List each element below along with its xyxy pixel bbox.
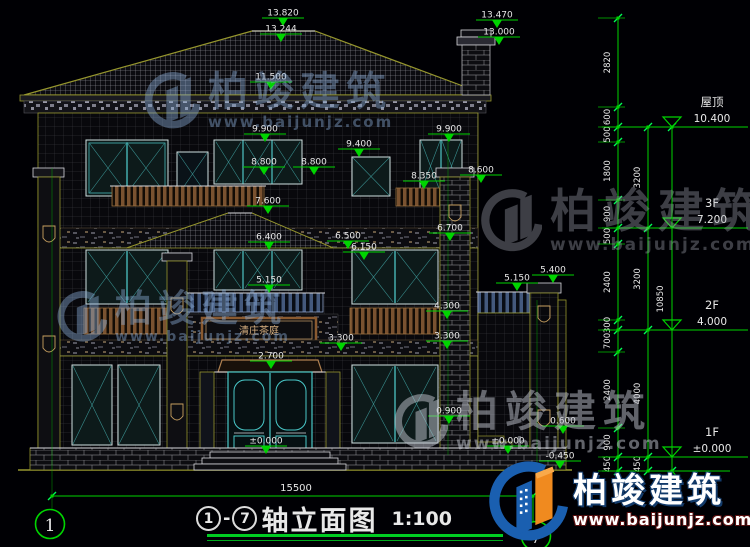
dim-tick-dot	[617, 351, 620, 354]
dim-chain-value: 3200	[633, 167, 643, 189]
elevation-mark-value: 13.000	[483, 28, 515, 38]
elevation-mark-value: 3.300	[328, 334, 354, 344]
elevation-mark-triangle	[336, 343, 346, 351]
elevation-mark-triangle	[354, 149, 364, 157]
floor-level-label: 3F	[705, 196, 719, 210]
dim-chain-value: 600	[603, 109, 613, 125]
dim-tick-dot	[617, 427, 620, 430]
drawing-title: 1 - 7 轴立面图 1:100	[196, 499, 452, 538]
elevation-mark-value: 9.400	[346, 140, 372, 150]
dim-chain-value: 2400	[603, 379, 613, 401]
elevation-mark-triangle	[512, 283, 522, 291]
dim-chain-value: 500	[603, 228, 613, 244]
elevation-mark-triangle	[309, 167, 319, 175]
floor-level-label: 屋顶	[701, 95, 724, 109]
dim-chain-value: 300	[603, 317, 613, 333]
elevation-mark-value: 0.900	[436, 407, 462, 417]
elevation-mark-value: 11.500	[255, 73, 287, 83]
elevation-mark-triangle	[264, 242, 274, 250]
title-axis-start: 1	[196, 506, 221, 531]
floor-level-value: 10.400	[694, 113, 731, 125]
dim-tick-dot	[617, 243, 620, 246]
elevation-mark-value: 5.150	[504, 274, 530, 284]
floor-level-label: 1F	[705, 425, 719, 439]
elevation-mark-triangle	[266, 361, 276, 369]
cad-canvas: 清庄茶庭	[0, 0, 750, 547]
elevation-mark-triangle	[359, 252, 369, 260]
title-scale: 1:100	[391, 508, 451, 530]
floor-level-label: 2F	[705, 298, 719, 312]
elevation-mark-triangle	[419, 181, 429, 189]
floor-level-value: 4.000	[697, 316, 727, 328]
elevation-mark-triangle	[444, 416, 454, 424]
floor-level-value: 7.200	[697, 214, 727, 226]
elevation-mark-value: ±0.000	[491, 437, 525, 447]
elevation-mark-value: 6.500	[335, 232, 361, 242]
elevation-mark-value: 8.600	[468, 166, 494, 176]
elevation-mark-triangle	[259, 167, 269, 175]
elevation-mark-triangle	[261, 446, 271, 454]
bottom-dim-value: 15500	[280, 483, 312, 494]
elevation-mark-value: 13.244	[265, 25, 297, 35]
dim-tick-dot	[51, 495, 54, 498]
title-underline	[207, 534, 503, 537]
elevation-mark-triangle	[503, 446, 513, 454]
elevation-mark-value: ±0.000	[249, 437, 283, 447]
dim-tick-dot	[617, 319, 620, 322]
elevation-mark-triangle	[548, 275, 558, 283]
elevation-mark-triangle	[558, 426, 568, 434]
elevation-mark-triangle	[444, 134, 454, 142]
dim-chain-value: 2820	[603, 52, 613, 74]
elevation-mark-value: 3.300	[434, 332, 460, 342]
dim-tick-dot	[617, 17, 620, 20]
elevation-mark-value: 0.600	[550, 417, 576, 427]
elevation-mark-value: 13.470	[481, 11, 513, 21]
elevation-mark-triangle	[260, 134, 270, 142]
elevation-mark-triangle	[266, 82, 276, 90]
dim-tick-dot	[617, 141, 620, 144]
dim-chain-value: 500	[603, 126, 613, 142]
elevation-mark-value: 6.700	[437, 224, 463, 234]
brand-logo-icon	[479, 458, 571, 544]
elevation-mark-triangle	[276, 34, 286, 42]
dim-chain-value: 900	[603, 206, 613, 222]
dim-tick-dot	[617, 199, 620, 202]
title-name: 轴立面图	[261, 499, 377, 538]
elevation-mark-triangle	[445, 233, 455, 241]
dim-chain-value: 900	[603, 434, 613, 450]
elevation-mark-value: 6.400	[256, 233, 282, 243]
brand-logo-text: 柏竣建筑	[573, 474, 750, 508]
elevation-mark-triangle	[263, 206, 273, 214]
dim-chain-value: 700	[603, 333, 613, 349]
dim-chain-value: 1800	[603, 160, 613, 182]
title-dash: -	[223, 508, 230, 529]
elevation-mark-triangle	[442, 311, 452, 319]
dim-tick-dot	[617, 106, 620, 109]
elevation-mark-value: 9.900	[436, 125, 462, 135]
axis-bubble-left-number: 1	[45, 516, 56, 536]
dim-chain-value: 2400	[603, 271, 613, 293]
title-axis-end: 7	[232, 506, 257, 531]
elevation-mark-triangle	[494, 37, 504, 45]
elevation-mark-triangle	[476, 175, 486, 183]
elevation-mark-value: 8.800	[251, 158, 277, 168]
floor-level-value: ±0.000	[693, 443, 732, 455]
dim-chain-value: 10850	[656, 285, 666, 312]
brand-logo-url: www.baijunjz.com	[573, 512, 750, 528]
title-underline-thin	[207, 540, 503, 541]
elevation-mark-value: 6.150	[351, 243, 377, 253]
elevation-mark-value: 7.600	[255, 197, 281, 207]
elevation-mark-value: 5.400	[540, 266, 566, 276]
elevation-mark-value: 13.820	[267, 9, 299, 19]
elevation-mark-value: 4.300	[434, 302, 460, 312]
elevation-mark-value: 8.800	[301, 158, 327, 168]
dim-chain-value: 3200	[633, 268, 643, 290]
brand-logo: 柏竣建筑 www.baijunjz.com	[479, 458, 750, 544]
elevation-mark-value: 9.900	[252, 125, 278, 135]
elevation-mark-value: 2.700	[258, 352, 284, 362]
dim-chain-value: 4000	[633, 383, 643, 405]
elevation-mark-value: 8.350	[411, 172, 437, 182]
elevation-mark-value: 5.150	[256, 276, 282, 286]
elevation-mark-triangle	[442, 341, 452, 349]
elevation-mark-triangle	[264, 285, 274, 293]
